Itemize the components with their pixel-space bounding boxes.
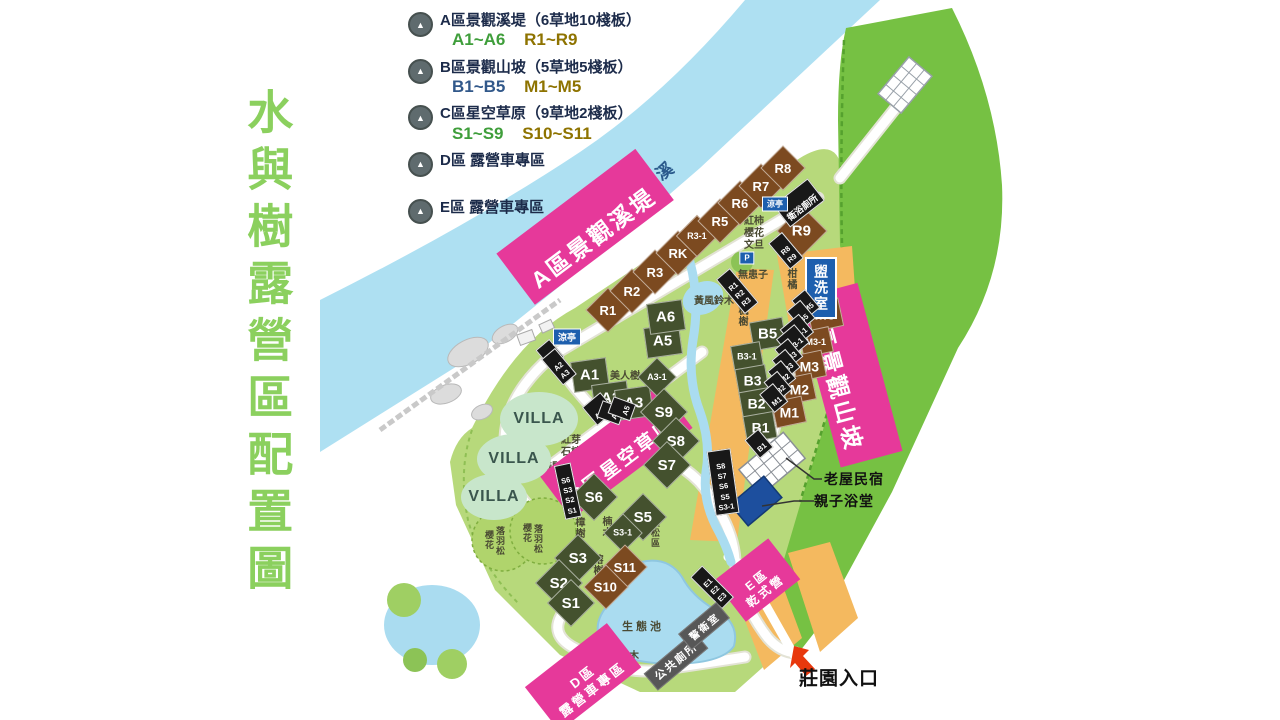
campsite-plot-label: M3 <box>799 358 818 374</box>
villa-label: VILLA <box>488 450 539 468</box>
facility-badge: 涼亭 <box>553 329 581 346</box>
legend-item-codes: B1~B5 M1~M5 <box>452 77 633 97</box>
direction-sign-label: A5 <box>620 404 632 416</box>
facility-badge-label: 涼亭 <box>767 200 783 209</box>
legend-code-deck: M1~M5 <box>524 77 581 96</box>
legend-item-title: E區 露營車專區 <box>440 199 544 216</box>
legend-code-grass: A1~A6 <box>452 30 505 49</box>
page-title: 水與樹露營區配置圖 <box>243 88 291 601</box>
legend-item: ▲ A區景觀溪堤（6草地10棧板） A1~A6 R1~R9 <box>408 12 641 51</box>
campsite-plot-label: R9 <box>792 223 811 240</box>
legend-item-text: E區 露營車專區 <box>440 199 544 238</box>
tent-icon: ▲ <box>408 105 433 130</box>
campsite-plot-label: R3 <box>647 265 664 280</box>
legend-item-text: D區 露營車專區 <box>440 152 545 191</box>
campsite-plot-label: RK <box>669 246 688 261</box>
legend-code-grass: S1~S9 <box>452 124 504 143</box>
campsite-plot-label: R8 <box>775 161 792 176</box>
campsite-plot-label: S6 <box>585 488 603 505</box>
tent-icon: ▲ <box>408 199 433 224</box>
legend-item-codes: A1~A6 R1~R9 <box>452 30 641 50</box>
tent-icon: ▲ <box>408 59 433 84</box>
legend-item: ▲ E區 露營車專區 <box>408 199 641 238</box>
villa-label: VILLA <box>468 488 519 506</box>
legend-item-title: B區景觀山坡（5草地5棧板） <box>440 59 633 76</box>
poi-label: 老屋民宿 <box>824 469 884 489</box>
campsite-plot-label: A3-1 <box>647 372 667 382</box>
legend-item-title: A區景觀溪堤（6草地10棧板） <box>440 12 641 29</box>
campsite-plot-label: S1 <box>562 594 580 611</box>
facility-badge-label: P <box>744 254 749 263</box>
direction-sign-label: M1 <box>770 395 784 409</box>
campsite-plot-label: A5 <box>653 333 672 350</box>
poi-label: 莊園入口 <box>799 664 879 691</box>
legend-item: ▲ D區 露營車專區 <box>408 152 641 191</box>
direction-sign-label: S8 S7 S6 S5 S3-1 <box>716 461 735 512</box>
legend-item-text: A區景觀溪堤（6草地10棧板） A1~A6 R1~R9 <box>440 12 641 51</box>
direction-sign-label: B1 <box>755 441 768 454</box>
legend-item-text: C區星空草原（9草地2棧板） S1~S9 S10~S11 <box>440 105 633 144</box>
legend-item-codes: S1~S9 S10~S11 <box>452 124 633 144</box>
legend-item-codes <box>452 170 545 190</box>
tent-icon: ▲ <box>408 12 433 37</box>
campsite-plot-label: S7 <box>658 456 676 473</box>
legend-item-title: C區星空草原（9草地2棧板） <box>440 105 633 122</box>
campsite-plot-label: R3-1 <box>687 231 707 241</box>
campsite-plot-label: R2 <box>624 284 641 299</box>
legend-item: ▲ B區景觀山坡（5草地5棧板） B1~B5 M1~M5 <box>408 59 641 98</box>
legend-item-text: B區景觀山坡（5草地5棧板） B1~B5 M1~M5 <box>440 59 633 98</box>
campsite-plot-label: B5 <box>758 326 777 343</box>
legend-item-codes <box>452 217 544 237</box>
campsite-plot-label: R6 <box>732 196 749 211</box>
campsite-plot-label: S5 <box>634 508 652 525</box>
campsite-plot-label: R7 <box>753 179 770 194</box>
tree-label: 生態池 <box>622 608 664 634</box>
villa-label: VILLA <box>513 410 564 428</box>
campsite-plot-label: S3 <box>569 549 587 566</box>
campground-map: 水與樹露營區配置圖 ▲ A區景觀溪堤（6草地10棧板） A1~A6 R1~R9 … <box>0 0 1280 720</box>
legend-code-deck: R1~R9 <box>524 30 577 49</box>
facility-badge: 涼亭 <box>762 197 788 212</box>
facility-badge-label: 涼亭 <box>558 333 576 343</box>
campsite-plot-label: S11 <box>614 559 636 574</box>
poi-label: 親子浴堂 <box>814 491 874 511</box>
legend-code-deck: S10~S11 <box>522 124 592 143</box>
facility-badge: P <box>739 252 754 265</box>
tent-icon: ▲ <box>408 152 433 177</box>
tree-label: 櫻花 <box>483 530 505 550</box>
campsite-plot-label: A6 <box>656 309 675 326</box>
campsite-plot: A6 <box>646 299 686 335</box>
campsite-plot-label: A1 <box>580 367 599 384</box>
tree-label: 櫻花 <box>521 523 543 543</box>
campsite-plot-label: S9 <box>655 403 673 420</box>
legend-code-grass: B1~B5 <box>452 77 505 96</box>
campsite-plot-label: B3 <box>743 372 761 388</box>
legend-item-title: D區 露營車專區 <box>440 152 545 169</box>
campsite-plot-label: S10 <box>594 579 617 594</box>
villa-area: VILLA <box>461 474 527 520</box>
campsite-plot-label: R1 <box>600 303 617 318</box>
legend: ▲ A區景觀溪堤（6草地10棧板） A1~A6 R1~R9 ▲ B區景觀山坡（5… <box>408 12 641 237</box>
legend-item: ▲ C區星空草原（9草地2棧板） S1~S9 S10~S11 <box>408 105 641 144</box>
campsite-plot-label: B3-1 <box>737 351 757 361</box>
campsite-plot-label: R5 <box>712 214 729 229</box>
campsite-plot-label: S3-1 <box>613 528 632 538</box>
